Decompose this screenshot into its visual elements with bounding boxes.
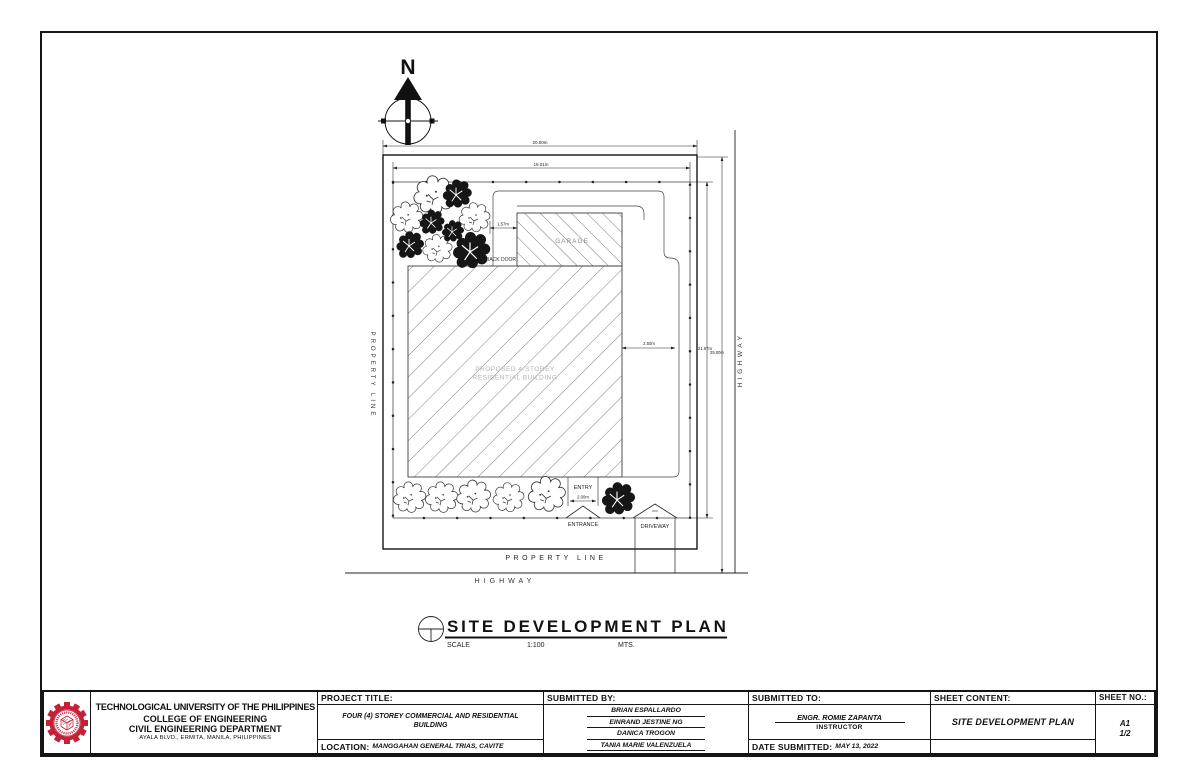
entry-label: ENTRY [574, 485, 593, 491]
scale-label: SCALE [447, 642, 470, 649]
university-cell: TECHNOLOGICAL UNIVERSITY OF THE PHILIPPI… [44, 692, 318, 753]
drawing-sheet: N [0, 0, 1200, 776]
scale-value: 1:100 [527, 642, 545, 649]
building-footprint: PROPOSED 4-STOREY RESIDENTIAL BUILDING [408, 266, 622, 477]
building-label-1: PROPOSED 4-STOREY [475, 366, 555, 373]
sheet-content-cell: SHEET CONTENT: SITE DEVELOPMENT PLAN [931, 692, 1096, 753]
driveway-label: DRIVEWAY [641, 524, 670, 530]
university-address: AYALA BLVD., ERMITA, MANILA, PHILIPPINES [139, 735, 271, 741]
dim-20m: 20.00m [532, 140, 547, 145]
sheet-no-line2: 1/2 [1119, 729, 1130, 739]
north-label: N [400, 56, 415, 79]
highway-right-label: HIGHWAY [737, 333, 744, 388]
university-name: TECHNOLOGICAL UNIVERSITY OF THE PHILIPPI… [96, 703, 315, 714]
project-title-header: PROJECT TITLE: [318, 692, 543, 705]
date-submitted-header: DATE SUBMITTED: [752, 741, 832, 753]
dim-2-50m: 2.50m [643, 341, 655, 346]
sheet-no-line1: A1 [1120, 719, 1130, 729]
department-name: CIVIL ENGINEERING DEPARTMENT [129, 724, 282, 734]
university-logo [44, 692, 91, 753]
property-line-left-label: PROPERTY LINE [369, 332, 375, 419]
university-info: TECHNOLOGICAL UNIVERSITY OF THE PHILIPPI… [91, 692, 320, 753]
property-line-bottom-label: PROPERTY LINE [505, 555, 606, 562]
garage: GARAGE [517, 213, 622, 266]
dim-25m: 25.00m [710, 350, 724, 355]
plan-title-text: SITE DEVELOPMENT PLAN [447, 617, 729, 636]
submitted-by-cell: SUBMITTED BY: BRIAN ESPALLARDO EINRAND J… [544, 692, 749, 753]
entrance-gate-icon [566, 506, 600, 518]
college-name: COLLEGE OF ENGINEERING [143, 714, 267, 724]
project-title-cell: PROJECT TITLE: FOUR (4) STOREY COMMERCIA… [318, 692, 544, 753]
site-plan-drawing: N [0, 0, 1200, 690]
dim-2-00m: 2.00m [577, 495, 589, 500]
title-block: TECHNOLOGICAL UNIVERSITY OF THE PHILIPPI… [42, 690, 1156, 755]
garage-label: GARAGE [555, 238, 589, 245]
submitted-to-cell: SUBMITTED TO: ENGR. ROMIE ZAPANTA INSTRU… [749, 692, 931, 753]
submitted-to-header: SUBMITTED TO: [749, 692, 930, 705]
sheet-content-header: SHEET CONTENT: [931, 692, 1095, 705]
back-door-label: BACK DOOR [486, 257, 516, 263]
location-value: MANGGAHAN GENERAL TRIAS, CAVITE [372, 743, 503, 750]
sheet-no-header: SHEET NO.: [1096, 692, 1154, 705]
project-title-value: FOUR (4) STOREY COMMERCIAL AND RESIDENTI… [333, 713, 529, 731]
location-header: LOCATION: [321, 741, 369, 753]
submitted-by-name-1: BRIAN ESPALLARDO [587, 707, 705, 716]
instructor-name: ENGR. ROMIE ZAPANTA [775, 713, 905, 723]
tup-seal-icon [44, 697, 90, 749]
sheet-content-value: SITE DEVELOPMENT PLAN [952, 717, 1074, 727]
entrance-label: ENTRANCE [568, 522, 599, 528]
sheet-no-cell: SHEET NO.: A1 1/2 [1096, 692, 1154, 753]
instructor-role: INSTRUCTOR [816, 724, 863, 731]
north-arrow-icon: N [378, 56, 438, 145]
submitted-by-name-2: EINRAND JESTINE NG [587, 719, 705, 728]
submitted-by-name-4: TANIA MARIE VALENZUELA [587, 742, 705, 751]
sheet-content-empty-row [931, 739, 1095, 753]
drawing-title: SITE DEVELOPMENT PLAN SCALE 1:100 MTS. [419, 617, 729, 650]
dim-19m: 19.01m [533, 162, 548, 167]
units-label: MTS. [618, 642, 635, 649]
date-submitted-value: MAY 13, 2022 [835, 743, 878, 750]
building-label-2: RESIDENTIAL BUILDING [473, 375, 558, 382]
submitted-by-name-3: DANICA TROGON [587, 730, 705, 739]
dim-1-57m: 1.57m [497, 222, 509, 227]
submitted-by-header: SUBMITTED BY: [544, 692, 748, 705]
highway-bottom-label: HIGHWAY [475, 578, 536, 585]
